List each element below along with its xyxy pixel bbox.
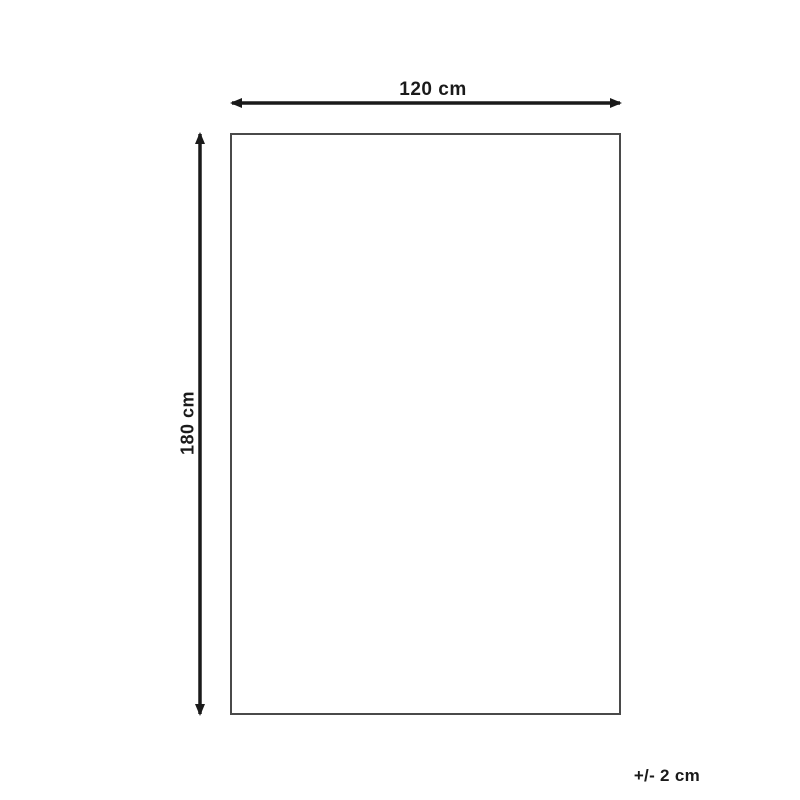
product-outline-rectangle [230, 133, 621, 715]
width-dimension-label: 120 cm [399, 79, 466, 101]
dimension-diagram: 120 cm 180 cm +/- 2 cm [0, 0, 800, 800]
tolerance-label: +/- 2 cm [634, 766, 700, 786]
height-dimension-label: 180 cm [178, 391, 199, 455]
